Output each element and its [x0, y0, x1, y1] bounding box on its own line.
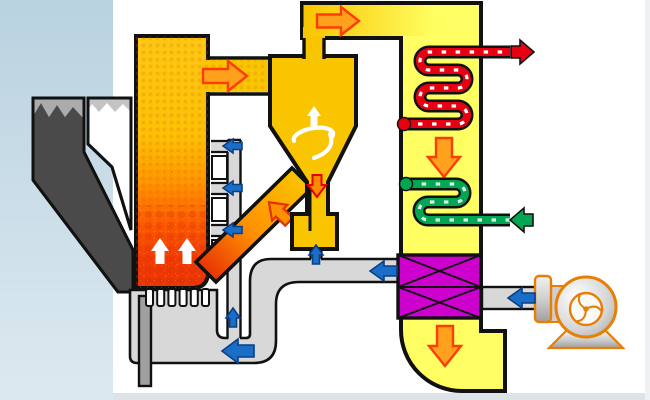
- fan-flange: [535, 276, 551, 322]
- boiler-diagram: [0, 0, 650, 400]
- diagram-canvas: [0, 0, 650, 400]
- economizer-outlet-dot: [400, 178, 413, 191]
- right-band: [645, 0, 650, 400]
- wall-panel: [212, 156, 227, 179]
- fan-hub: [583, 306, 589, 312]
- superheater-inlet-dot: [398, 118, 411, 131]
- ash-drain-pipe: [139, 296, 151, 386]
- wall-panel: [212, 198, 227, 221]
- crossover-duct: [203, 58, 272, 94]
- air-preheater: [398, 255, 481, 318]
- bed-zone: [138, 205, 206, 286]
- furnace: [136, 36, 208, 288]
